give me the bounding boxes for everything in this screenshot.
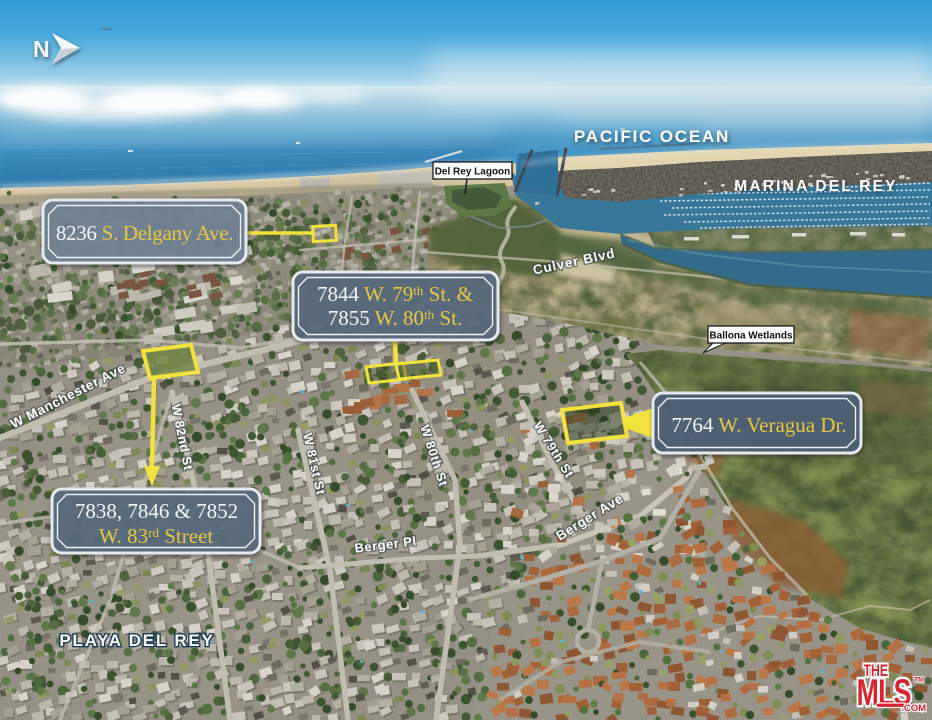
svg-text:Ballona Wetlands: Ballona Wetlands	[709, 331, 793, 342]
svg-text:7764 W. Veragua Dr.: 7764 W. Veragua Dr.	[671, 413, 846, 437]
svg-text:TM: TM	[914, 677, 924, 684]
svg-text:7855 W. 80th St.: 7855 W. 80th St.	[328, 306, 462, 330]
svg-text:.COM: .COM	[901, 703, 926, 714]
svg-text:MARINA DEL REY: MARINA DEL REY	[734, 178, 897, 195]
svg-text:7838, 7846 & 7852: 7838, 7846 & 7852	[75, 499, 238, 523]
svg-text:7844 W. 79th St. &: 7844 W. 79th St. &	[317, 282, 473, 306]
svg-text:PLAYA DEL REY: PLAYA DEL REY	[59, 631, 214, 650]
svg-text:8236 S. Delgany Ave.: 8236 S. Delgany Ave.	[56, 221, 233, 245]
svg-text:Del Rey Lagoon: Del Rey Lagoon	[435, 167, 511, 178]
svg-text:N: N	[33, 36, 50, 62]
svg-text:PACIFIC OCEAN: PACIFIC OCEAN	[574, 127, 730, 146]
